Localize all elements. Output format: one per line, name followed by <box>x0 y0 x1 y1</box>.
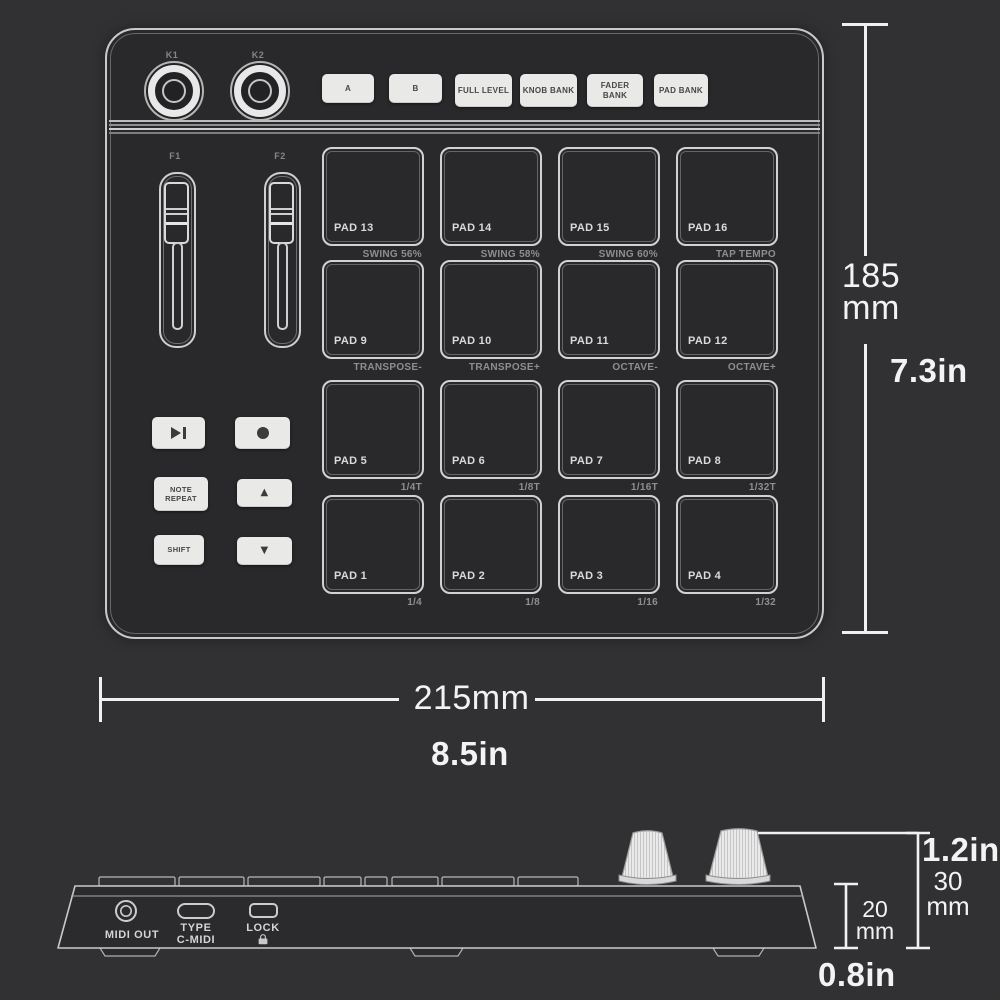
knob1-label: K1 <box>166 50 179 60</box>
controller-side-view: MIDI OUT TYPE C-MIDI LOCK <box>40 818 940 993</box>
knob2-label: K2 <box>252 50 265 60</box>
height-dim-metric: 185 mm <box>834 260 908 325</box>
shift-button[interactable]: SHIFT <box>154 535 204 565</box>
pad-16-sub-label: TAP TEMPO <box>676 249 778 260</box>
pad-7-sub-label: 1/16T <box>558 482 660 493</box>
midi-out-label: MIDI OUT <box>105 929 159 941</box>
depth-total-metric: 30 mm <box>924 869 972 918</box>
pad-12[interactable]: PAD 12 <box>676 260 778 359</box>
pad-1[interactable]: PAD 1 <box>322 495 424 594</box>
button-a[interactable]: A <box>322 74 374 103</box>
side-knob-2[interactable] <box>706 829 770 885</box>
pad-3[interactable]: PAD 3 <box>558 495 660 594</box>
depth-body-metric: 20 mm <box>851 899 899 943</box>
width-dim-line-left <box>99 698 399 701</box>
note-repeat-button[interactable]: NOTE REPEAT <box>154 477 208 511</box>
knob-k1-core <box>162 79 186 103</box>
side-feet <box>100 948 764 956</box>
depth-total-value: 30 <box>924 869 972 894</box>
pad-9-label: PAD 9 <box>334 335 367 347</box>
pad-10[interactable]: PAD 10 <box>440 260 542 359</box>
pad-11-label: PAD 11 <box>570 335 609 347</box>
fader-f2-cap[interactable] <box>269 182 294 244</box>
fader2-label: F2 <box>274 151 286 161</box>
pad-2-sub-label: 1/8 <box>440 597 542 608</box>
height-unit: mm <box>834 292 908 324</box>
record-icon <box>257 427 269 439</box>
knob-k2[interactable] <box>230 61 290 121</box>
button-b[interactable]: B <box>389 74 442 103</box>
pad-1-sub-label: 1/4 <box>322 597 424 608</box>
pad-7[interactable]: PAD 7 <box>558 380 660 479</box>
pad-9-sub-label: TRANSPOSE- <box>322 362 424 373</box>
depth-body-unit: mm <box>851 921 899 943</box>
pad-5-label: PAD 5 <box>334 455 367 467</box>
pad-5[interactable]: PAD 5 <box>322 380 424 479</box>
pad-16[interactable]: PAD 16 <box>676 147 778 246</box>
pad-9[interactable]: PAD 9 <box>322 260 424 359</box>
pad-row-1: PAD 13SWING 56% PAD 14SWING 58% PAD 15SW… <box>322 147 778 260</box>
pad-3-sub-label: 1/16 <box>558 597 660 608</box>
pad-15-sub-label: SWING 60% <box>558 249 660 260</box>
play-pause-button[interactable] <box>152 417 205 449</box>
depth-total-inches: 1.2in <box>922 831 1000 869</box>
pad-14-sub-label: SWING 58% <box>440 249 542 260</box>
side-pads-strip <box>99 877 578 886</box>
knob-k1-ring <box>148 65 200 117</box>
pad-13[interactable]: PAD 13 <box>322 147 424 246</box>
pad-4-sub-label: 1/32 <box>676 597 778 608</box>
fader-f2[interactable] <box>264 172 301 348</box>
width-dim-metric: 215mm <box>408 679 535 718</box>
height-dim-inches: 7.3in <box>890 352 968 390</box>
width-dim-inches: 8.5in <box>430 735 510 773</box>
down-button[interactable]: ▼ <box>237 537 292 565</box>
pad-row-3: PAD 51/4T PAD 61/8T PAD 71/16T PAD 81/32… <box>322 380 778 493</box>
button-knob-bank[interactable]: KNOB BANK <box>520 74 577 107</box>
pad-4-label: PAD 4 <box>688 570 721 582</box>
pad-3-label: PAD 3 <box>570 570 603 582</box>
pad-16-label: PAD 16 <box>688 222 728 234</box>
button-pad-bank[interactable]: PAD BANK <box>654 74 708 107</box>
height-dim-cap-bottom <box>842 631 888 634</box>
lock-label: LOCK <box>246 922 280 934</box>
knob-k2-core <box>248 79 272 103</box>
pad-13-label: PAD 13 <box>334 222 374 234</box>
fader-f1[interactable] <box>159 172 196 348</box>
fader-f1-cap[interactable] <box>164 182 189 244</box>
pad-8-sub-label: 1/32T <box>676 482 778 493</box>
pad-2[interactable]: PAD 2 <box>440 495 542 594</box>
depth-body-inches: 0.8in <box>818 956 896 994</box>
panel-divider <box>109 120 820 134</box>
pad-11[interactable]: PAD 11 <box>558 260 660 359</box>
pad-6[interactable]: PAD 6 <box>440 380 542 479</box>
pad-11-sub-label: OCTAVE- <box>558 362 660 373</box>
pad-7-label: PAD 7 <box>570 455 603 467</box>
pad-14-label: PAD 14 <box>452 222 492 234</box>
up-button[interactable]: ▲ <box>237 479 292 507</box>
pad-6-sub-label: 1/8T <box>440 482 542 493</box>
pad-row-4: PAD 11/4 PAD 21/8 PAD 31/16 PAD 41/32 <box>322 495 778 608</box>
pad-8-label: PAD 8 <box>688 455 721 467</box>
pad-15[interactable]: PAD 15 <box>558 147 660 246</box>
pause-bar-icon <box>183 427 186 439</box>
pad-12-label: PAD 12 <box>688 335 728 347</box>
pad-14[interactable]: PAD 14 <box>440 147 542 246</box>
height-value: 185 <box>834 260 908 292</box>
pad-10-sub-label: TRANSPOSE+ <box>440 362 542 373</box>
pad-13-sub-label: SWING 56% <box>322 249 424 260</box>
up-arrow-icon: ▲ <box>261 487 269 500</box>
fader-f2-track <box>277 242 288 330</box>
button-full-level[interactable]: FULL LEVEL <box>455 74 512 107</box>
pad-12-sub-label: OCTAVE+ <box>676 362 778 373</box>
side-body <box>58 886 816 948</box>
button-fader-bank[interactable]: FADER BANK <box>587 74 643 107</box>
pad-4[interactable]: PAD 4 <box>676 495 778 594</box>
height-dim-line-lower <box>864 344 867 632</box>
pad-10-label: PAD 10 <box>452 335 492 347</box>
pad-2-label: PAD 2 <box>452 570 485 582</box>
down-arrow-icon: ▼ <box>261 545 269 558</box>
usb-label-line1: TYPE <box>180 922 211 934</box>
record-button[interactable] <box>235 417 290 449</box>
controller-top-view: K1 K2 A B FULL LEVEL KNOB BANK FADER BAN… <box>105 28 824 639</box>
play-icon <box>171 427 181 439</box>
fader1-label: F1 <box>169 151 181 161</box>
pad-5-sub-label: 1/4T <box>322 482 424 493</box>
side-knob-1[interactable] <box>619 831 676 885</box>
knob-k1[interactable] <box>144 61 204 121</box>
pad-8[interactable]: PAD 8 <box>676 380 778 479</box>
fader-f1-track <box>172 242 183 330</box>
knob-k2-ring <box>234 65 286 117</box>
pad-6-label: PAD 6 <box>452 455 485 467</box>
width-dim-cap-right <box>822 677 825 722</box>
width-dim-line-right <box>535 698 825 701</box>
pad-15-label: PAD 15 <box>570 222 610 234</box>
height-dim-line-upper <box>864 23 867 256</box>
usb-label-line2: C-MIDI <box>177 934 215 946</box>
pad-row-2: PAD 9TRANSPOSE- PAD 10TRANSPOSE+ PAD 11O… <box>322 260 778 373</box>
pad-1-label: PAD 1 <box>334 570 367 582</box>
depth-total-unit: mm <box>924 894 972 919</box>
